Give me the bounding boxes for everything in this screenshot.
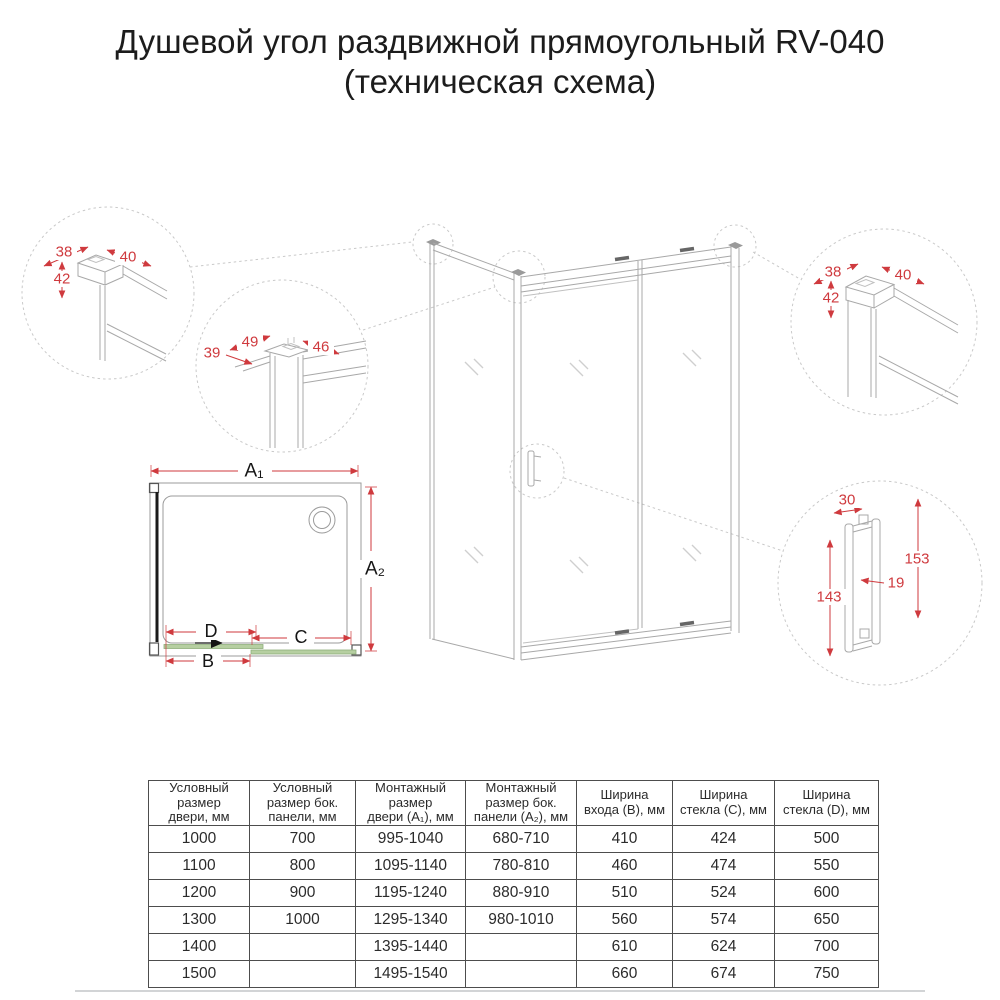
table-cell: 560: [577, 907, 673, 934]
table-cell: 900: [250, 880, 356, 907]
drain-circle: [309, 507, 335, 533]
table-cell: 1395-1440: [356, 934, 466, 961]
table-cell: 880-910: [466, 880, 577, 907]
dim-label: 143: [816, 589, 841, 606]
table-cell: 1095-1140: [356, 853, 466, 880]
table-cell: 700: [250, 826, 356, 853]
dim-label: 46: [313, 339, 330, 356]
table-cell: 1195-1240: [356, 880, 466, 907]
leader-line: [564, 478, 783, 551]
table-cell: [250, 961, 356, 988]
bottom-divider: [75, 990, 925, 992]
table-cell: 750: [775, 961, 879, 988]
shower-tray: [163, 496, 347, 643]
table-row: 1500 1495-1540 660 674 750: [149, 961, 879, 988]
table-cell: 460: [577, 853, 673, 880]
detail-mid-left-profile: 49 46 39: [199, 334, 366, 449]
leader-line: [363, 287, 495, 330]
table-cell: 995-1040: [356, 826, 466, 853]
roller: [615, 258, 629, 260]
dim-label: 49: [242, 334, 259, 351]
callout-handle: [510, 444, 564, 498]
table-cell: 1400: [149, 934, 250, 961]
table-cell: 1000: [149, 826, 250, 853]
table-cell: [250, 934, 356, 961]
callout-corner-front: [493, 251, 545, 303]
main-3d-view: [426, 239, 743, 660]
plan-label-b: B: [202, 651, 214, 671]
table-cell: 410: [577, 826, 673, 853]
table-cell: 674: [673, 961, 775, 988]
drain-circle: [314, 512, 331, 529]
column-header: Условный размер двери, мм: [149, 781, 250, 826]
plan-label-a2: A₂: [365, 559, 385, 580]
glass-fixed-plan: [251, 650, 356, 654]
roller: [680, 623, 694, 625]
table-cell: 624: [673, 934, 775, 961]
table-cell: 424: [673, 826, 775, 853]
table-row: 1000 700 995-1040 680-710 410 424 500: [149, 826, 879, 853]
table-cell: 1100: [149, 853, 250, 880]
detail-top-right-profile: 38 40 42: [814, 264, 958, 405]
column-header: Ширина стекла (D), мм: [775, 781, 879, 826]
column-header: Ширина стекла (C), мм: [673, 781, 775, 826]
dimension-line: [226, 355, 252, 364]
glass-door-plan: [164, 645, 263, 649]
table-cell: 800: [250, 853, 356, 880]
table-header-row: Условный размер двери, мм Условный разме…: [149, 781, 879, 826]
plan-corner-profile: [150, 484, 159, 493]
detail-circle-mid-left: [196, 280, 368, 452]
dim-label: 153: [904, 551, 929, 568]
table-row: 1200 900 1195-1240 880-910 510 524 600: [149, 880, 879, 907]
corner-cap: [728, 242, 743, 249]
table-cell: 1300: [149, 907, 250, 934]
table-cell: 1200: [149, 880, 250, 907]
table-cell: 574: [673, 907, 775, 934]
door-handle: [528, 451, 541, 486]
column-header: Условный размер бок. панели, мм: [250, 781, 356, 826]
dim-label: 42: [823, 290, 840, 307]
column-header: Монтажный размер двери (A₁), мм: [356, 781, 466, 826]
corner-cap: [511, 269, 526, 276]
table-cell: 650: [775, 907, 879, 934]
table-row: 1300 1000 1295-1340 980-1010 560 574 650: [149, 907, 879, 934]
table-cell: 680-710: [466, 826, 577, 853]
dimension-line: [834, 509, 862, 513]
glass-reflections: [465, 350, 701, 573]
table-cell: 1495-1540: [356, 961, 466, 988]
table-cell: 524: [673, 880, 775, 907]
dim-label: 38: [56, 244, 73, 261]
table-cell: 550: [775, 853, 879, 880]
table-cell: [466, 934, 577, 961]
leader-line: [190, 242, 412, 267]
plan-corner-profile: [150, 643, 159, 655]
column-header: Монтажный размер бок. панели (A₂), мм: [466, 781, 577, 826]
table-cell: 610: [577, 934, 673, 961]
dim-label: 42: [54, 271, 71, 288]
dim-label: 40: [120, 249, 137, 266]
dim-label: 38: [825, 264, 842, 281]
dim-label: 19: [888, 575, 905, 592]
roller: [680, 249, 694, 251]
table-cell: 700: [775, 934, 879, 961]
table-cell: 510: [577, 880, 673, 907]
table-cell: 1500: [149, 961, 250, 988]
dim-label: 39: [204, 345, 221, 362]
dim-label: 40: [895, 267, 912, 284]
table-cell: 1000: [250, 907, 356, 934]
column-header: Ширина входа (B), мм: [577, 781, 673, 826]
table-cell: 780-810: [466, 853, 577, 880]
plan-view: A₁ A₂ D C B: [150, 461, 393, 672]
table-row: 1100 800 1095-1140 780-810 460 474 550: [149, 853, 879, 880]
dim-label: 30: [839, 492, 856, 509]
table-cell: 500: [775, 826, 879, 853]
plan-label-a1: A₁: [244, 461, 263, 482]
table-cell: 474: [673, 853, 775, 880]
detail-circle-top-left: [22, 207, 194, 379]
detail-circle-top-right: [791, 229, 977, 415]
plan-label-c: C: [295, 627, 308, 647]
table-cell: 980-1010: [466, 907, 577, 934]
plan-label-d: D: [205, 621, 218, 641]
leader-line: [753, 252, 800, 279]
detail-top-left-profile: 38 40 42: [44, 244, 167, 362]
size-table: Условный размер двери, мм Условный разме…: [148, 780, 879, 988]
table-cell: 1295-1340: [356, 907, 466, 934]
table-cell: 660: [577, 961, 673, 988]
roller: [615, 631, 629, 633]
table-cell: 600: [775, 880, 879, 907]
table-row: 1400 1395-1440 610 624 700: [149, 934, 879, 961]
detail-handle-drawing: 30 153 19 143: [813, 492, 934, 657]
table-cell: [466, 961, 577, 988]
